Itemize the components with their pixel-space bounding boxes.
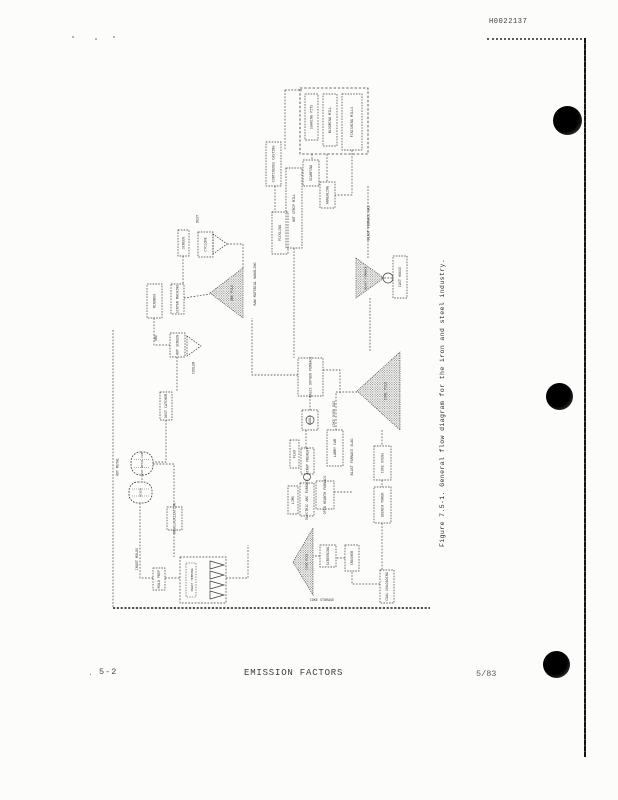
flow-line [153, 420, 166, 462]
page-edge-line [584, 38, 586, 757]
ingot-molds-label-label: INGOT MOLDS [135, 548, 139, 570]
running-title: EMISSION FACTORS [244, 668, 343, 678]
cast-house-label: CAST HOUSE [398, 267, 402, 287]
windbox-label: WINDBOX [153, 293, 157, 308]
coke-storage-label-label: COKE STORAGE [310, 598, 335, 602]
annealing-label: ANNEALING [326, 186, 330, 204]
flow-line [226, 545, 248, 578]
flow-line [336, 392, 357, 430]
hot-strip-mill-label: HOT STRIP MILL [292, 194, 296, 223]
bf-slag-label-label: BLAST FURNACE SLAG [350, 439, 354, 476]
binder-hole [543, 651, 570, 678]
scrap-preheat-label: SCRAP PREHEAT [306, 448, 310, 475]
hot-metal-car-label: HOT METAL CAR [140, 452, 144, 474]
flow-line [140, 503, 153, 578]
mold-prep-label: MOLD PREP [157, 570, 161, 588]
coke-ovens-label: COKE OVENS [381, 453, 385, 473]
dust-label-label: DUST [196, 215, 200, 223]
blast-furnace-label: BLAST FURNACE [363, 266, 367, 290]
flow-line [227, 244, 243, 268]
flow-line [335, 150, 352, 195]
scarfing-label: SCARFING [309, 165, 313, 181]
coke-pile-label: COKE PILE [304, 553, 308, 569]
open-hearth-furnace-label: OPEN HEARTH FURNACE [323, 476, 327, 515]
cooler-label-label: COOLER [192, 361, 196, 374]
sinter-machine-label: SINTER MACHINE [176, 285, 180, 314]
material-handling-label-label: RAW MATERIAL HANDLING [253, 263, 257, 306]
pickling-label: PICKLING [278, 225, 282, 241]
cyclone-cone [213, 234, 227, 254]
quench-tower-label: QUENCH TOWER [381, 492, 385, 517]
ore-pile-label: ORE PILE [230, 285, 234, 301]
lime-label: LIME [291, 496, 295, 504]
cyclone-label: CYCLONE [204, 237, 208, 251]
coal-pile-label: COAL PILE [384, 382, 388, 400]
bof-label: BASIC OXYGEN FURNACE [309, 357, 313, 398]
ore-pile [210, 268, 243, 318]
page-number: 5-2 [99, 667, 117, 677]
ore-label-label: ORE [154, 335, 158, 341]
binder-hole [546, 383, 573, 410]
hot-metal-label-label: HOT METAL [116, 458, 120, 476]
bf-gas-label-label: BLAST FURNACE GAS [367, 206, 371, 241]
hot-screen-label: HOT SCREEN [176, 335, 180, 355]
revision-date: 5/83 [476, 669, 496, 679]
ingot-chevron [210, 581, 224, 589]
flow-line [184, 294, 210, 298]
larry-car-label: LARRY CAR [333, 438, 337, 457]
ingot-chevron [210, 561, 224, 569]
soaking-pits-label: SOAKING PITS [310, 105, 314, 130]
dust-catcher-label: DUST CATCHER [164, 393, 168, 418]
flux-label: FLUX [293, 449, 297, 458]
coal-unloading-label: COAL UNLOADING [385, 572, 389, 601]
continuous-casting-label: CONTINUOUS CASTING [272, 146, 276, 183]
ingot-chevron [210, 571, 224, 579]
scanned-page: H0022137 SOAKING PITSBLOOMING MILLFINISH… [0, 0, 618, 800]
ingot-chevron [210, 591, 224, 599]
coke-pile [293, 528, 313, 595]
screening-label: SCREENING [326, 547, 330, 565]
figure-caption: Figure 7.5-1. General flow diagram for t… [439, 245, 446, 547]
coke-oven-gas-label-label: COKE OVEN GAS [332, 401, 336, 428]
electric-arc-furnace-label: ELECTRIC ARC FURNACE [305, 479, 309, 520]
desulfurization-label: DESULFURIZATION [173, 503, 177, 534]
screen-label: SCREEN [182, 237, 186, 249]
mixer-label: MIXER [139, 488, 143, 497]
flow-line [153, 464, 174, 507]
scan-mark: . [88, 669, 93, 678]
blast-furnace [356, 258, 384, 298]
finishing-mills-label: FINISHING MILLS [350, 107, 354, 138]
sinter-cooler-cone [187, 336, 201, 356]
crusher-label: CRUSHER [350, 550, 354, 565]
coal-pile [357, 352, 400, 430]
flow-line [323, 370, 340, 394]
ingot-teeming-label: INGOT TEEMING [190, 568, 194, 592]
figure-diagram: SOAKING PITSBLOOMING MILLFINISHING MILLS… [0, 0, 618, 800]
blooming-mill-label: BLOOMING MILL [328, 107, 332, 134]
flow-line [352, 571, 380, 584]
flow-line [252, 318, 298, 375]
binder-hole [553, 106, 582, 135]
